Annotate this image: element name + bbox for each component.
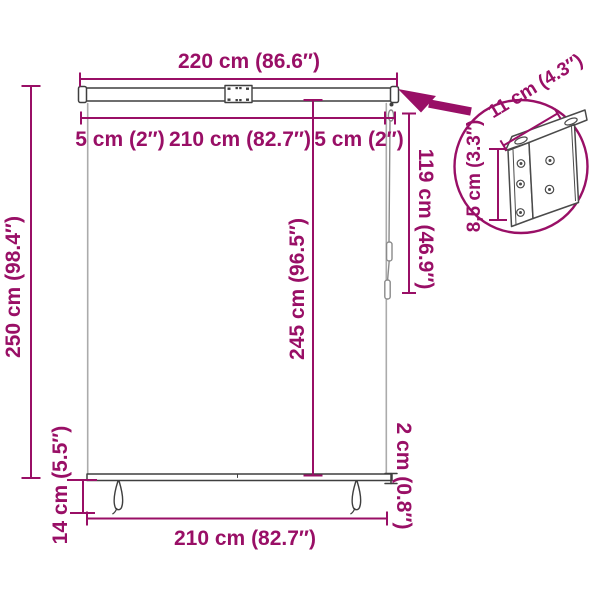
hook-left — [113, 482, 123, 514]
label-total-width: 220 cm (86.6″) — [178, 50, 320, 74]
label-side-gap-right: 5 cm (2″) — [314, 128, 403, 152]
bottom-bar — [87, 474, 397, 484]
wall-bracket — [506, 110, 588, 227]
fabric-panel — [88, 104, 387, 475]
label-fabric-width-top: 210 cm (82.7″) — [169, 128, 311, 152]
end-cap-right — [391, 87, 399, 103]
dim-line-total-width — [80, 73, 397, 87]
dim-line-top-widths — [81, 112, 395, 125]
dim-line-bracket-height — [489, 149, 507, 220]
top-bar — [79, 86, 399, 103]
end-cap-left — [79, 87, 87, 103]
label-fabric-width-bottom: 210 cm (82.7″) — [174, 527, 316, 551]
label-center-drop: 245 cm (96.5″) — [286, 218, 310, 360]
dim-line-bottom-width — [87, 512, 387, 526]
label-side-gap-left: 5 cm (2″) — [75, 128, 164, 152]
label-right-drop: 119 cm (46.9″) — [413, 149, 437, 290]
dimension-diagram: 220 cm (86.6″) 5 cm (2″) 210 cm (82.7″) … — [0, 0, 600, 600]
label-total-height: 250 cm (98.4″) — [2, 216, 26, 358]
label-bracket-height: 8,5 cm (3.3″) — [464, 120, 486, 233]
hook-right — [351, 482, 361, 514]
callout-arrow-icon — [398, 89, 471, 113]
center-bracket — [225, 86, 252, 103]
label-bar-thickness: 2 cm (0.8″) — [391, 423, 415, 530]
label-bottom-gap: 14 cm (5.5″) — [49, 426, 73, 545]
